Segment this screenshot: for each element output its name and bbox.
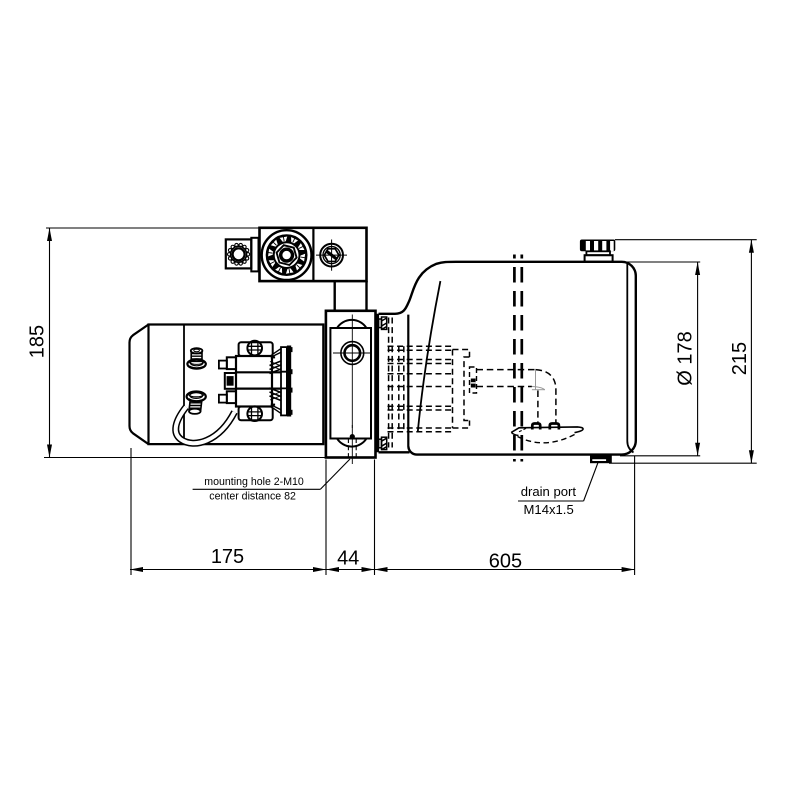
svg-text:185: 185 <box>27 325 49 358</box>
svg-text:center distance 82: center distance 82 <box>209 490 296 502</box>
svg-text:drain port: drain port <box>521 484 577 499</box>
svg-text:44: 44 <box>337 548 359 570</box>
svg-text:175: 175 <box>211 546 244 568</box>
svg-text:Ø 178: Ø 178 <box>675 331 697 385</box>
svg-text:M14x1.5: M14x1.5 <box>524 502 574 517</box>
svg-text:215: 215 <box>729 342 751 375</box>
svg-text:605: 605 <box>489 551 522 573</box>
svg-text:mounting hole 2-M10: mounting hole 2-M10 <box>204 476 304 488</box>
